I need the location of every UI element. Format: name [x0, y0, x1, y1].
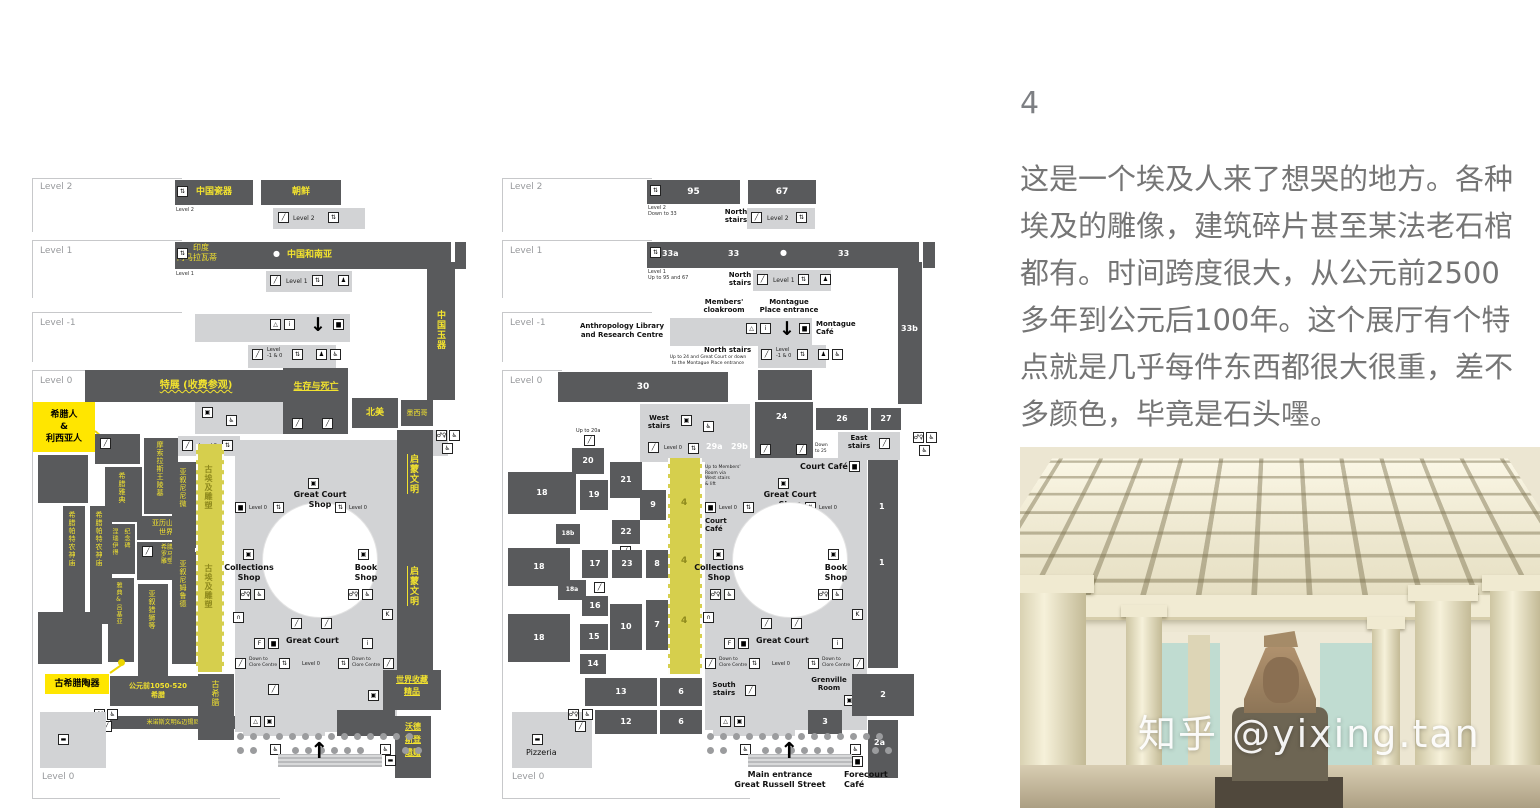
lift-icon: ⇅: [808, 658, 819, 669]
level0-label: Level 0: [510, 376, 542, 387]
label-29b: 29b: [731, 442, 748, 452]
room-special-exhibitions: 特展 (收费参观): [85, 370, 307, 402]
label-living-and-dying: 生存与死亡: [286, 382, 346, 393]
room-27: 27: [871, 408, 901, 430]
label-great-court: Great Court: [286, 636, 339, 646]
gallery-photo[interactable]: 知乎 @yixing.tan: [1020, 447, 1540, 808]
white-dot: ●: [273, 249, 280, 259]
label-room4-1: 4: [681, 498, 687, 509]
shop-icon: ▣: [681, 415, 692, 426]
floorplan-image-english[interactable]: Level 2Level 1Level -1Level 0Level 09567…: [500, 172, 940, 808]
label-down-clore-right: Down to Clore Centre: [352, 657, 380, 668]
room-18b: 18b: [556, 524, 580, 544]
section-number: 4: [1020, 86, 1039, 121]
info-icon: i: [284, 319, 295, 330]
label-assyria-lion-hunt: 亚叙猎狮等: [147, 590, 156, 630]
room-6: 6: [660, 678, 702, 706]
cafe-icon: ▆: [333, 319, 344, 330]
lift-icon: ⇅: [279, 658, 290, 669]
room-14: 14: [580, 654, 606, 674]
cloakroom-icon: △: [250, 716, 261, 727]
shop-icon: ▣: [358, 549, 369, 560]
label-athens-lycia: 雅典&吕基亚: [114, 582, 122, 625]
level-minus1-label: Level -1: [510, 318, 546, 329]
lift-icon: ⇅: [796, 212, 807, 223]
label-33-east: 33: [838, 249, 849, 259]
toilets-icon: ♂♀: [348, 589, 359, 600]
column-capital: [1121, 605, 1167, 617]
cafe-icon: ▆: [235, 502, 246, 513]
level2-box-label: Level 2: [767, 215, 789, 223]
level0-label: Level 0: [40, 376, 72, 387]
person-icon: ♟: [316, 349, 327, 360]
level1-lift-tag: Level 1: [176, 271, 194, 278]
level1-box-label: Level 1: [773, 277, 795, 285]
label-collections-shop: Collections Shop: [220, 563, 278, 583]
room-22: 22: [612, 520, 640, 544]
room-south-stub: [337, 710, 395, 736]
label-montague-cafe: Montague Café: [816, 320, 856, 336]
lockers-icon: K: [382, 609, 393, 620]
label-court-level0: Level 0: [302, 661, 320, 668]
stairs-icon: ╱: [322, 418, 333, 429]
toilets-icon: ♂♀: [710, 589, 721, 600]
article-paragraph: 这是一个埃及人来了想哭的地方。各种埃及的雕像，建筑碎片甚至某法老石棺都有。时间跨…: [1020, 156, 1540, 438]
paragraph-line: 多颜色，毕竟是石头嚜。: [1020, 391, 1540, 438]
label-members-room-note: Up to Members' Room via West stairs & li…: [705, 465, 741, 487]
lift-icon: ⇅: [798, 274, 809, 285]
level0-bottom-line: [502, 798, 750, 799]
stairs-icon: ╱: [182, 440, 193, 451]
label-24: 24: [776, 412, 787, 422]
info-icon: i: [832, 638, 843, 649]
statue-face: [1263, 657, 1299, 703]
room-mexico: 墨西哥: [401, 400, 433, 426]
label-court-cafe-left: Court Café: [705, 517, 727, 533]
accessible-icon: ♿: [254, 589, 265, 600]
stairs-icon: ╱: [760, 444, 771, 455]
person-icon: ♟: [820, 274, 831, 285]
label-mausoleum: 摩索拉斯王陵墓: [155, 441, 164, 497]
lift-icon: ⇅: [650, 185, 661, 196]
label-egyptian-sculpture-1: 古埃及雕塑: [203, 465, 213, 510]
label-court-level0: Level 0: [772, 661, 790, 668]
entrance-down-arrow: ↓: [310, 315, 326, 336]
label-29a: 29a: [706, 442, 723, 452]
info-icon: i: [760, 323, 771, 334]
room-7: 7: [646, 600, 668, 650]
room-north-america: 北美: [352, 398, 398, 428]
room-13: 13: [585, 678, 657, 706]
accessible-icon: ♿: [703, 421, 714, 432]
families-icon: F: [724, 638, 735, 649]
label-chinese-jade: 中国玉器: [434, 310, 445, 350]
cloakroom-icon: △: [270, 319, 281, 330]
label-north-stairs-lower: North stairs: [704, 346, 751, 355]
shop-icon: ▣: [243, 549, 254, 560]
lift-icon: ⇅: [749, 658, 760, 669]
restaurant-area: [40, 712, 106, 768]
label-33b: 33b: [901, 324, 918, 334]
audio-guide-icon: ∩: [703, 612, 714, 623]
label-members-cloakroom: Members' cloakroom: [696, 298, 752, 314]
label-down-clore-left: Down to Clore Centre: [249, 657, 277, 668]
room-korea: 朝鲜: [261, 180, 341, 205]
entrance-steps: [278, 754, 382, 767]
label-court-cafe-top: Court Café: [800, 462, 848, 472]
column-capital: [1408, 585, 1478, 601]
paragraph-line: 这是一个埃及人来了想哭的地方。各种: [1020, 156, 1540, 203]
reading-room-circle: [262, 502, 378, 618]
shop-icon: ▣: [778, 478, 789, 489]
stairs-icon: ╱: [853, 658, 864, 669]
level0-bottom-label: Level 0: [512, 772, 544, 783]
column-capital: [1367, 617, 1405, 629]
watermark: 知乎 @yixing.tan: [1138, 703, 1481, 758]
room-23: 23: [612, 550, 642, 578]
white-dot: ●: [780, 248, 787, 258]
toilets-icon: ♂♀: [568, 709, 579, 720]
accessible-icon: ♿: [919, 445, 930, 456]
toilets-icon: ♂♀: [818, 589, 829, 600]
lift-icon: ⇅: [650, 247, 661, 258]
lift-icon: ⇅: [292, 349, 303, 360]
lift-icon: ⇅: [273, 502, 284, 513]
level1-lift-tag: Level 1 Up to 95 and 67: [648, 269, 688, 281]
stairs-icon: ╱: [383, 658, 394, 669]
accessible-icon: ♿: [582, 709, 593, 720]
stairs-icon: ╱: [648, 442, 659, 453]
stairs-icon: ╱: [761, 618, 772, 629]
shop-icon: ▣: [368, 690, 379, 701]
label-anthropology-library: Anthropology Library and Research Centre: [576, 322, 668, 340]
label-parthenon-2: 希腊帕特农神庙: [94, 511, 103, 567]
stairs-icon: ╱: [594, 582, 605, 593]
stairs-icon: ╱: [705, 658, 716, 669]
label-pizzeria: Pizzeria: [526, 748, 557, 758]
column-capital: [1482, 575, 1540, 591]
stairs-icon: ╱: [321, 618, 332, 629]
cloakroom-icon: △: [720, 716, 731, 727]
label-assyria-nimrud: 亚叙尼姆鲁德: [178, 560, 187, 608]
label-south-stairs: South stairs: [706, 681, 742, 697]
toilets-icon: ♂♀: [436, 430, 447, 441]
room-21: 21: [610, 462, 642, 498]
room-30: 30: [558, 372, 728, 402]
label-main-entrance: Main entrance Great Russell Street: [725, 770, 835, 790]
room-20: 20: [572, 448, 604, 474]
label-room1-b: 1: [879, 558, 885, 568]
label-india: 印度: [193, 243, 209, 253]
level2-box-label: Level 2: [293, 215, 315, 223]
stairs-icon: ╱: [575, 721, 586, 732]
cafe-icon: ▆: [738, 638, 749, 649]
level2-lift-tag: Level 2: [176, 207, 194, 214]
stairs-icon: ╱: [745, 685, 756, 696]
level2-lift-tag: Level 2 Down to 33: [648, 205, 677, 217]
label-china-south-asia: 中国和南亚: [287, 250, 332, 261]
room-10: 10: [610, 604, 642, 650]
room-level1-stub: [455, 242, 466, 269]
level1-box-label: Level 1: [286, 278, 308, 286]
room-level1-stub: [923, 242, 935, 268]
lift-icon: ⇅: [688, 443, 699, 454]
paragraph-line: 都有。时间跨度很大，从公元前2500: [1020, 250, 1540, 297]
label-monument: 纪念碑: [122, 528, 130, 549]
entrance-arrow: ↑: [780, 740, 798, 764]
stairs-icon: ╱: [751, 212, 762, 223]
accessible-icon: ♿: [926, 432, 937, 443]
room-3: 3: [808, 710, 842, 734]
shop-icon: ▣: [828, 549, 839, 560]
room-17: 17: [582, 550, 608, 578]
paragraph-line: 点就是几乎每件东西都很大很重，差不: [1020, 344, 1540, 391]
label-enlightenment-2: 启蒙文明: [407, 566, 418, 606]
accessible-icon: ♿: [832, 349, 843, 360]
label-up-to-20a: Up to 20a: [576, 428, 600, 435]
label-collecting-the-world: 世界收藏 精品: [385, 674, 439, 698]
lift-icon: ⇅: [328, 212, 339, 223]
cafe-icon: ▆: [705, 502, 716, 513]
callout-greek-pottery: 古希腊陶器: [45, 674, 109, 694]
stairs-icon: ╱: [757, 274, 768, 285]
room-6b: 6: [660, 710, 702, 734]
label-forecourt-cafe: Forecourt Café: [844, 770, 888, 790]
info-icon: i: [362, 638, 373, 649]
room-west-lower: [38, 612, 102, 664]
level1-label: Level 1: [510, 246, 542, 257]
stairs-icon: ╱: [796, 444, 807, 455]
statue-plinth: [1215, 777, 1343, 808]
room-8: 8: [646, 550, 668, 578]
label-down-clore-left: Down to Clore Centre: [719, 657, 747, 668]
stairs-icon: ╱: [791, 618, 802, 629]
label-room4-2: 4: [681, 556, 687, 567]
accessible-icon: ♿: [724, 589, 735, 600]
accessible-icon: ♿: [362, 589, 373, 600]
entrance-arrow: ↑: [310, 740, 328, 764]
person-icon: ♟: [818, 349, 829, 360]
room-15: 15: [580, 624, 608, 650]
level-minus1-label: Level -1: [40, 318, 76, 329]
room-greece-1050-520bc: 公元前1050-520 希腊: [110, 676, 206, 706]
lift-icon: ⇅: [312, 275, 323, 286]
room-18: 18: [508, 472, 576, 514]
room-2: 2: [852, 674, 914, 716]
person-icon: ♟: [338, 275, 349, 286]
label-montague-place-entrance: Montague Place entrance: [754, 298, 824, 314]
cafe-icon: ▆: [852, 756, 863, 767]
label-west-stairs: West stairs: [641, 414, 677, 430]
lift-icon: ⇅: [338, 658, 349, 669]
shop-icon: ▣: [308, 478, 319, 489]
toilets-icon: ♂♀: [240, 589, 251, 600]
shop-icon: ▣: [734, 716, 745, 727]
room-west-upper: [38, 455, 88, 503]
room-16: 16: [582, 596, 608, 616]
cafe-icon: ▆: [268, 638, 279, 649]
callout-greeks-lycians: 希腊人 & 利西亚人: [33, 402, 95, 452]
stairs-icon: ╱: [270, 275, 281, 286]
level0-tag-label: Level 0: [719, 505, 737, 512]
cafe-icon: ▬: [385, 755, 396, 766]
label-enlightenment-1: 启蒙文明: [407, 454, 418, 494]
stairs-icon: ╱: [291, 618, 302, 629]
label-grenville-room: Grenville Room: [806, 676, 852, 692]
shop-icon: ▣: [202, 407, 213, 418]
lift-icon: ⇅: [177, 248, 188, 259]
accessible-icon: ♿: [107, 709, 118, 720]
cafe-icon: ▆: [799, 323, 810, 334]
shop-icon: ▣: [713, 549, 724, 560]
label-great-court: Great Court: [756, 636, 809, 646]
label-room1-a: 1: [879, 502, 885, 512]
label-room4-3: 4: [681, 616, 687, 627]
paragraph-line: 埃及的雕像，建筑碎片甚至某法老石棺: [1020, 203, 1540, 250]
toilets-icon: ♂♀: [913, 432, 924, 443]
cloakroom-icon: △: [746, 323, 757, 334]
north-connector: [758, 370, 812, 400]
families-icon: F: [254, 638, 265, 649]
lift-icon: ⇅: [177, 186, 188, 197]
room-9: 9: [640, 490, 666, 520]
label-book-shop: Book Shop: [345, 563, 387, 583]
level0-bottom-line: [32, 798, 280, 799]
callout-dot: [118, 659, 125, 666]
room-19: 19: [580, 480, 608, 510]
accessible-icon: ♿: [442, 443, 453, 454]
label-parthenon-1: 希腊帕特农神庙: [67, 511, 76, 567]
label-egyptian-sculpture-2: 古埃及雕塑: [203, 564, 213, 609]
paragraph-line: 多年到公元后100年。这个展厅有个特: [1020, 297, 1540, 344]
room-18-south: 18: [508, 614, 570, 662]
level0-tag-label: Level 0: [664, 445, 682, 452]
room-12: 12: [595, 710, 657, 734]
label-east-stairs: East stairs: [842, 434, 876, 450]
stairs-icon: ╱: [235, 658, 246, 669]
accessible-icon: ♿: [832, 589, 843, 600]
reading-room-circle: [732, 502, 848, 618]
label-33a: 33a: [662, 249, 679, 259]
entrance-down-arrow: ↓: [779, 319, 795, 340]
stairs-icon: ╱: [761, 349, 772, 360]
stairs-icon: ╱: [268, 684, 279, 695]
audio-guide-icon: ∩: [233, 612, 244, 623]
level-minus1-box-label: Level -1 & 0: [776, 347, 791, 359]
lift-icon: ⇅: [335, 502, 346, 513]
stairs-icon: ╱: [100, 438, 111, 449]
level2-label: Level 2: [40, 182, 72, 193]
label-down-clore-right: Down to Clore Centre: [822, 657, 850, 668]
restaurant-icon: ▬: [532, 734, 543, 745]
accessible-icon: ♿: [226, 415, 237, 426]
column-capital: [1020, 575, 1094, 593]
label-down-to-25: Down to 25: [815, 443, 828, 454]
label-book-shop: Book Shop: [815, 563, 857, 583]
label-greece-athens: 希腊雅典: [117, 472, 126, 504]
level0-tag-label: Level 0: [349, 505, 367, 512]
label-collections-shop: Collections Shop: [690, 563, 748, 583]
label-great-court-shop: Great Court Shop: [282, 490, 358, 510]
restaurant-icon: ▬: [58, 734, 69, 745]
entrance-steps: [748, 754, 852, 767]
stairs-icon: ╱: [142, 546, 153, 557]
stairs-icon: ╱: [278, 212, 289, 223]
stairs-icon: ╱: [292, 418, 303, 429]
level0-bottom-label: Level 0: [42, 772, 74, 783]
label-assyria-nineveh: 亚叙尼尼微: [178, 468, 187, 508]
level0-tag-label: Level 0: [249, 505, 267, 512]
label-ancient-greece: 古希腊: [210, 680, 220, 707]
label-waddesdon-bequest: 沃德 斯登 遗赠: [397, 720, 429, 759]
stairs-icon: ╱: [252, 349, 263, 360]
lift-icon: ⇅: [797, 349, 808, 360]
room-67: 67: [748, 180, 816, 204]
lockers-icon: K: [852, 609, 863, 620]
level2-label: Level 2: [510, 182, 542, 193]
shop-icon: ▣: [264, 716, 275, 727]
level1-label: Level 1: [40, 246, 72, 257]
cafe-icon: ▆: [849, 461, 860, 472]
label-north-stairs-desc: Up to 24 and Great Court or down to the …: [660, 355, 756, 366]
stairs-icon: ╱: [584, 435, 595, 446]
room-26: 26: [816, 408, 868, 430]
label-33-west: 33: [728, 249, 739, 259]
level-minus1-box-label: Level -1 & 0: [267, 347, 282, 359]
stairs-icon: ╱: [879, 438, 890, 449]
accessible-icon: ♿: [449, 430, 460, 441]
accessible-icon: ♿: [330, 349, 341, 360]
floorplan-image-chinese[interactable]: Level 2Level 1Level -1Level 0Level 0中国瓷器…: [30, 172, 470, 808]
article-page: Level 2Level 1Level -1Level 0Level 0中国瓷器…: [0, 0, 1540, 808]
